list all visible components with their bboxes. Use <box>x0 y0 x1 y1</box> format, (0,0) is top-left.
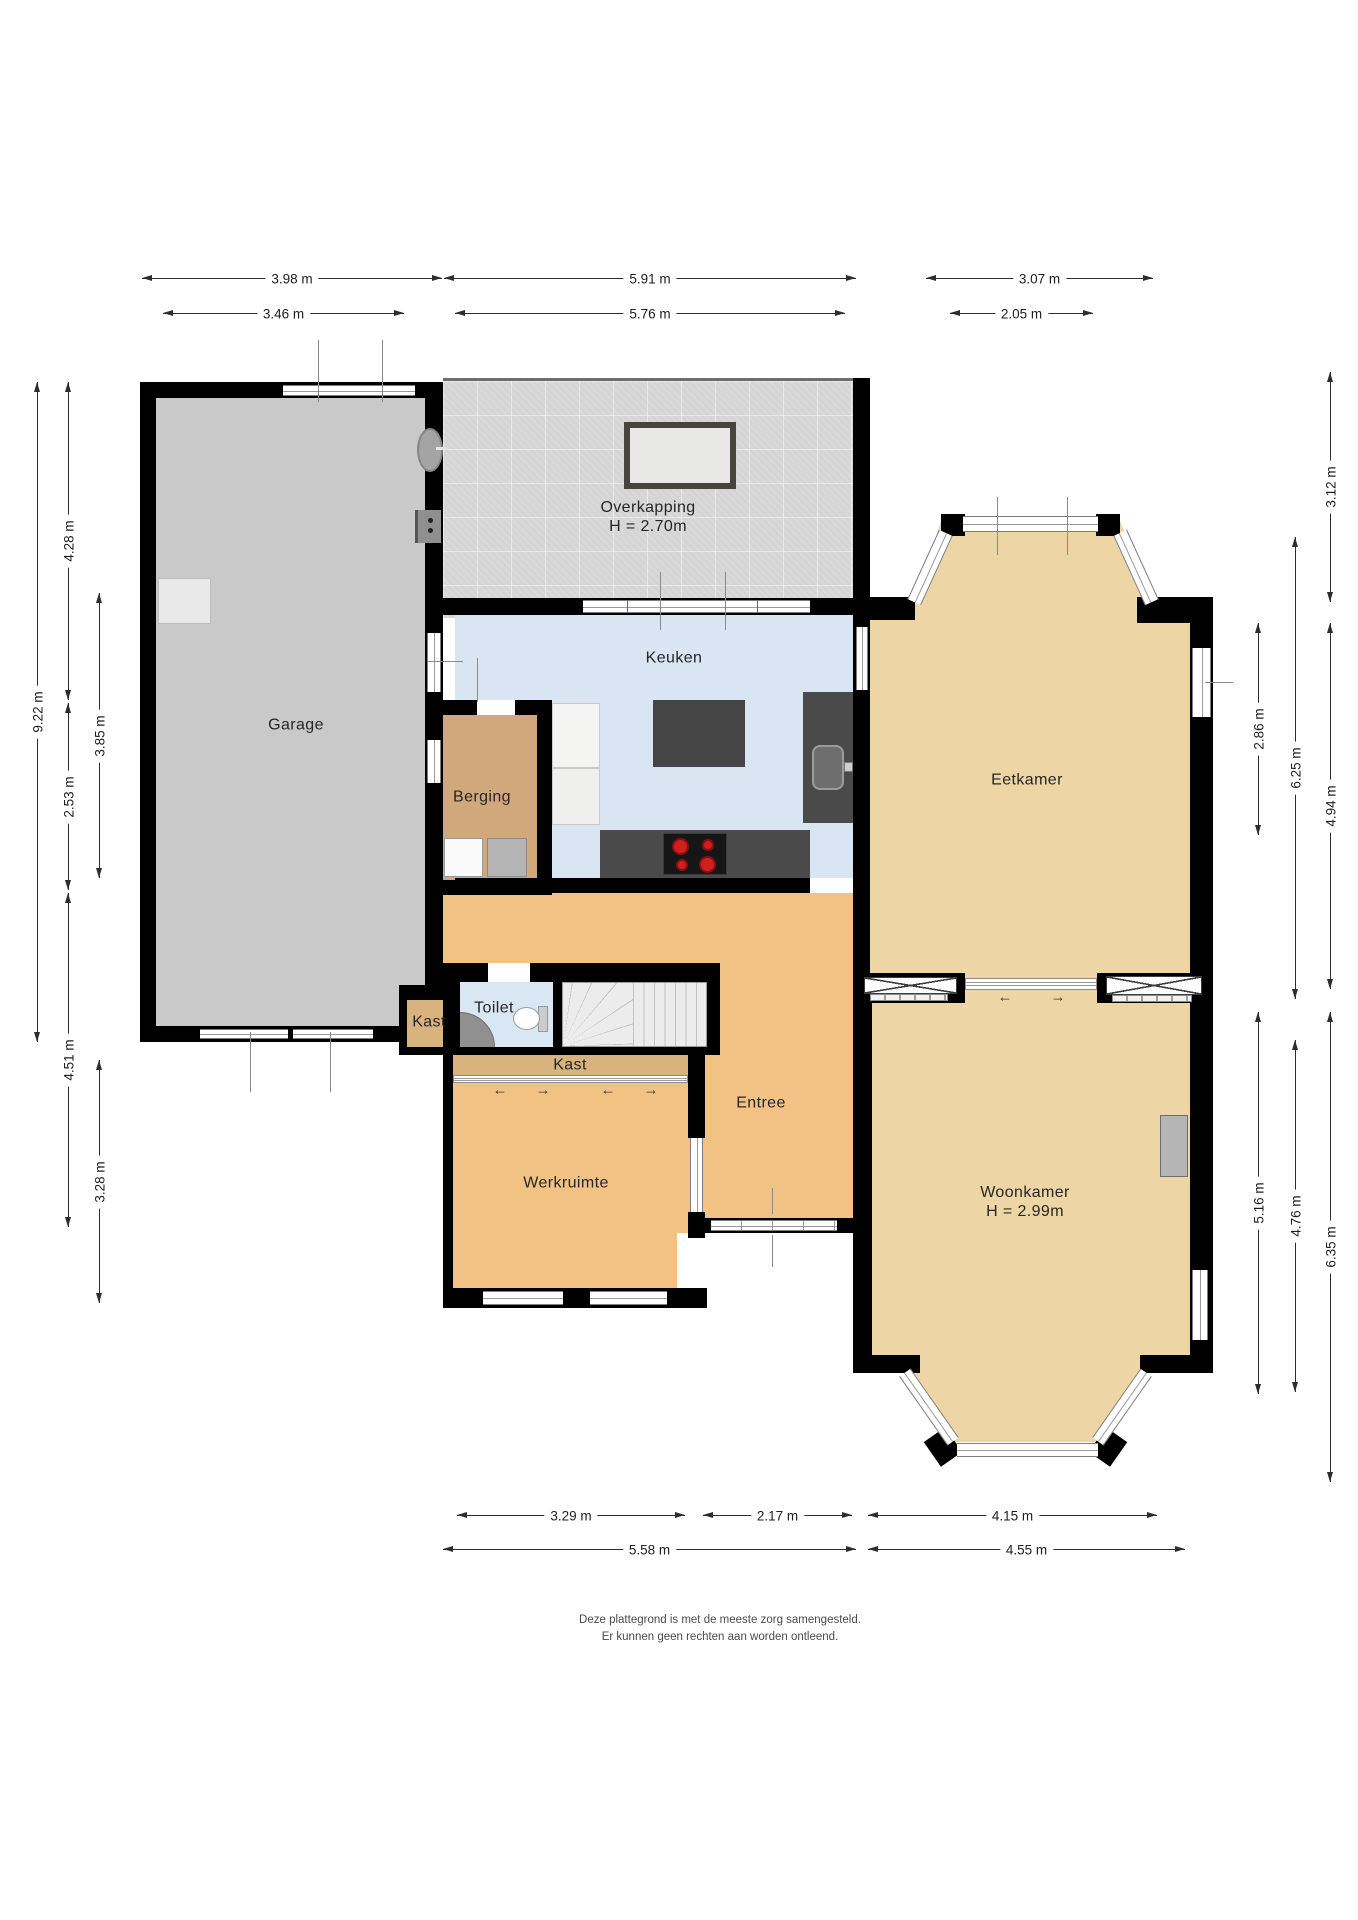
window <box>856 627 868 690</box>
radiator <box>1160 1115 1188 1177</box>
dimension-5.16-m: 5.16 m <box>1258 1012 1259 1394</box>
disclaimer: Deze plattegrond is met de meeste zorg s… <box>579 1612 861 1646</box>
dimension-5.91-m: 5.91 m <box>444 278 856 279</box>
garden-table <box>624 422 736 489</box>
workbench <box>158 578 211 624</box>
dimension-4.76-m: 4.76 m <box>1295 1040 1296 1392</box>
dimension-2.86-m: 2.86 m <box>1258 623 1259 835</box>
extension-tick <box>250 1032 251 1092</box>
extension-tick <box>772 1235 773 1267</box>
dimension-4.94-m: 4.94 m <box>1330 623 1331 989</box>
window <box>427 740 441 783</box>
window <box>283 385 415 396</box>
meter-cabinet <box>415 510 441 543</box>
arrow-left-icon: ← <box>998 989 1013 1006</box>
dimension-4.51-m: 4.51 m <box>68 893 69 1227</box>
window <box>690 1138 703 1212</box>
floor-plan: ← → ← → ← → Deze plattegrond is met <box>0 0 1358 1920</box>
wall <box>553 982 562 1047</box>
door-opening <box>477 700 515 715</box>
dimension-2.53-m: 2.53 m <box>68 703 69 890</box>
door-opening <box>488 963 530 982</box>
disclaimer-line1: Deze plattegrond is met de meeste zorg s… <box>579 1612 861 1629</box>
room-label-woonkamer: WoonkamerH = 2.99m <box>980 1183 1070 1221</box>
room-label-entree: Entree <box>736 1094 786 1113</box>
extension-tick <box>382 340 383 402</box>
wall <box>443 1047 453 1308</box>
extension-tick <box>428 661 463 662</box>
room-label-kast-klein: Kast <box>412 1013 446 1032</box>
bay-window <box>963 516 1098 532</box>
cupboard <box>864 977 957 994</box>
room-label-overkapping: OverkappingH = 2.70m <box>600 498 695 536</box>
meter-dot <box>428 528 433 533</box>
cupboard-doors <box>1112 995 1192 1002</box>
dimension-5.76-m: 5.76 m <box>455 313 845 314</box>
disclaimer-line2: Er kunnen geen rechten aan worden ontlee… <box>579 1629 861 1646</box>
room-garage-floor <box>156 398 425 1026</box>
window <box>583 600 810 613</box>
extension-tick <box>772 1188 773 1214</box>
window <box>1192 1270 1208 1340</box>
extension-tick <box>725 572 726 630</box>
room-woonkamer-floor <box>853 1003 1213 1462</box>
door-swing <box>477 658 478 702</box>
dryer <box>487 838 527 877</box>
washer <box>444 838 483 877</box>
dimension-3.85-m: 3.85 m <box>99 593 100 878</box>
wall <box>140 1026 443 1042</box>
wall <box>537 700 552 895</box>
garage-sink <box>417 428 443 472</box>
window-divider <box>757 600 758 613</box>
kitchen-sink <box>812 745 844 790</box>
room-eetkamer-floor <box>853 516 1213 1003</box>
room-label-kast: Kast <box>553 1056 587 1075</box>
arrow-right-icon: → <box>644 1082 659 1099</box>
dimension-9.22-m: 9.22 m <box>37 382 38 1042</box>
cooktop <box>663 833 727 875</box>
dimension-2.17-m: 2.17 m <box>703 1515 852 1516</box>
window <box>427 633 441 692</box>
wall <box>425 880 552 895</box>
wall <box>140 382 156 1042</box>
wall <box>853 1003 872 1355</box>
cupboard-doors <box>870 994 948 1001</box>
extension-tick <box>318 340 319 402</box>
dimension-2.05-m: 2.05 m <box>950 313 1093 314</box>
dimension-6.35-m: 6.35 m <box>1330 1012 1331 1482</box>
entry-door-glass <box>711 1220 837 1231</box>
faucet-icon <box>844 762 853 772</box>
staircase-winders <box>563 983 633 1046</box>
toilet-bowl <box>513 1007 540 1030</box>
wall <box>1096 514 1120 536</box>
wall <box>688 1047 705 1138</box>
room-label-toilet: Toilet <box>474 999 514 1018</box>
staircase-treads <box>633 983 706 1046</box>
fridge <box>552 768 600 825</box>
room-label-werkruimte: Werkruimte <box>523 1174 609 1193</box>
window <box>590 1291 667 1305</box>
window-divider <box>627 600 628 613</box>
room-label-garage: Garage <box>268 716 324 735</box>
meter-dot <box>428 518 433 523</box>
arrow-right-icon: → <box>1051 989 1066 1006</box>
kitchen-island <box>653 700 745 767</box>
window <box>483 1291 563 1305</box>
burner <box>702 839 714 851</box>
faucet-icon <box>436 447 446 450</box>
dimension-4.15-m: 4.15 m <box>868 1515 1157 1516</box>
bay-window <box>957 1443 1098 1457</box>
wall <box>1140 1355 1213 1373</box>
sliding-door <box>965 978 1097 990</box>
arrow-left-icon: ← <box>601 1082 616 1099</box>
dimension-3.46-m: 3.46 m <box>163 313 404 314</box>
kitchen-counter <box>552 703 600 768</box>
arrow-left-icon: ← <box>493 1082 508 1099</box>
cupboard <box>1106 976 1202 995</box>
burner <box>672 838 689 855</box>
extension-tick <box>1205 682 1233 683</box>
room-label-berging: Berging <box>453 788 511 807</box>
dimension-3.12-m: 3.12 m <box>1330 372 1331 602</box>
dimension-3.07-m: 3.07 m <box>926 278 1153 279</box>
dimension-3.28-m: 3.28 m <box>99 1060 100 1303</box>
window <box>293 1029 373 1039</box>
dimension-5.58-m: 5.58 m <box>443 1549 856 1550</box>
burner <box>699 856 716 873</box>
wall <box>707 982 720 1047</box>
arrow-right-icon: → <box>536 1082 551 1099</box>
extension-tick <box>660 572 661 630</box>
room-label-eetkamer: Eetkamer <box>991 771 1063 790</box>
wall <box>443 963 720 982</box>
wall <box>853 378 870 600</box>
room-label-keuken: Keuken <box>646 649 703 668</box>
wall <box>853 597 915 620</box>
wall <box>443 963 460 1055</box>
wall <box>399 985 443 1000</box>
window <box>200 1029 288 1039</box>
dimension-4.28-m: 4.28 m <box>68 382 69 700</box>
dimension-3.29-m: 3.29 m <box>457 1515 685 1516</box>
burner <box>676 859 688 871</box>
dimension-4.55-m: 4.55 m <box>868 1549 1185 1550</box>
extension-tick <box>1067 497 1068 555</box>
dimension-6.25-m: 6.25 m <box>1295 537 1296 999</box>
dimension-3.98-m: 3.98 m <box>142 278 442 279</box>
extension-tick <box>330 1032 331 1092</box>
extension-tick <box>997 497 998 555</box>
